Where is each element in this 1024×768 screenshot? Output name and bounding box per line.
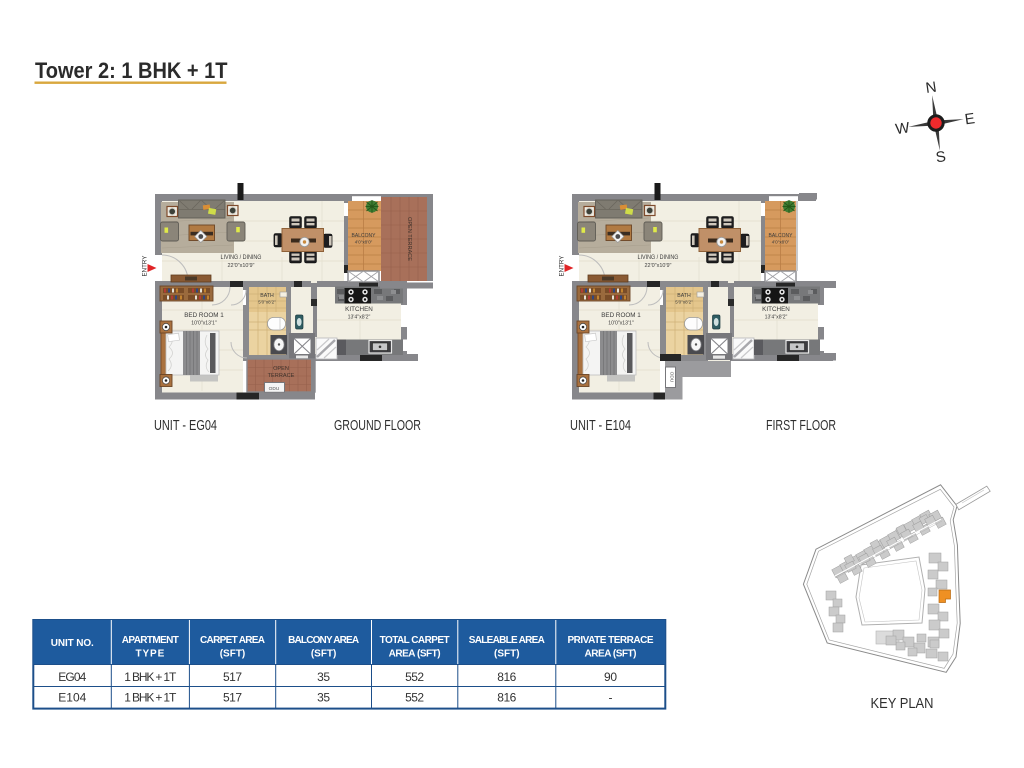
svg-text:517: 517	[223, 691, 242, 705]
svg-text:1 BHK + 1T: 1 BHK + 1T	[124, 691, 177, 705]
svg-text:OPEN: OPEN	[273, 366, 289, 372]
svg-text:OPEN TERRACE: OPEN TERRACE	[406, 217, 412, 261]
svg-text:35: 35	[317, 670, 330, 684]
svg-text:552: 552	[405, 691, 424, 705]
svg-text:BALCONY AREA: BALCONY AREA	[288, 635, 359, 646]
svg-text:-: -	[609, 691, 613, 705]
svg-text:ODU: ODU	[669, 372, 675, 383]
svg-text:(SFT): (SFT)	[220, 649, 246, 660]
svg-text:CARPET AREA: CARPET AREA	[200, 635, 265, 646]
svg-text:SALEABLE AREA: SALEABLE AREA	[469, 635, 545, 646]
svg-text:UNIT NO.: UNIT NO.	[51, 638, 94, 649]
svg-text:AREA (SFT): AREA (SFT)	[585, 649, 637, 660]
svg-text:35: 35	[317, 691, 330, 705]
svg-text:KEY PLAN: KEY PLAN	[871, 696, 934, 712]
svg-text:TERRACE: TERRACE	[268, 373, 295, 379]
svg-text:Tower 2: 1 BHK + 1T: Tower 2: 1 BHK + 1T	[35, 58, 228, 83]
svg-text:TYPE: TYPE	[135, 649, 165, 660]
svg-text:AREA (SFT): AREA (SFT)	[389, 649, 441, 660]
svg-text:APARTMENT: APARTMENT	[122, 635, 179, 646]
svg-text:517: 517	[223, 670, 242, 684]
svg-text:(SFT): (SFT)	[311, 649, 337, 660]
svg-text:(SFT): (SFT)	[494, 649, 520, 660]
svg-text:552: 552	[405, 670, 424, 684]
svg-text:UNIT - E104: UNIT - E104	[570, 417, 631, 434]
svg-text:90: 90	[604, 670, 617, 684]
svg-text:E104: E104	[58, 691, 86, 705]
svg-text:PRIVATE TERRACE: PRIVATE TERRACE	[568, 635, 654, 646]
svg-text:GROUND FLOOR: GROUND FLOOR	[334, 417, 421, 434]
svg-text:FIRST FLOOR: FIRST FLOOR	[766, 417, 836, 434]
svg-text:816: 816	[497, 670, 516, 684]
svg-text:ODU: ODU	[269, 386, 280, 392]
svg-text:816: 816	[497, 691, 516, 705]
svg-text:EG04: EG04	[58, 670, 86, 684]
svg-text:UNIT - EG04: UNIT - EG04	[154, 417, 217, 434]
svg-text:1 BHK + 1T: 1 BHK + 1T	[124, 670, 177, 684]
svg-text:TOTAL CARPET: TOTAL CARPET	[380, 635, 450, 646]
